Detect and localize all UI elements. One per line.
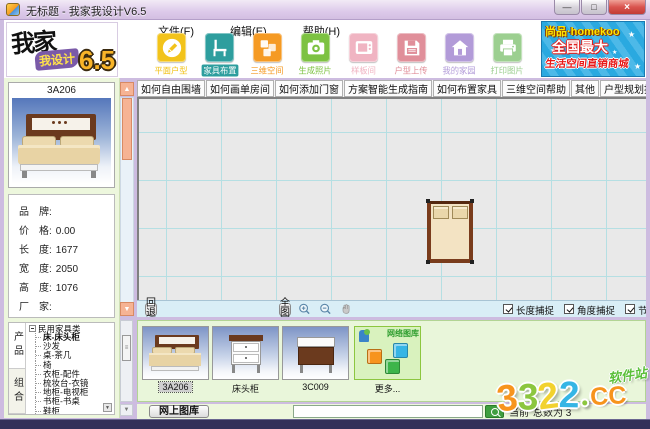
bed-dot	[52, 121, 55, 124]
checkbox-checked-icon[interactable]	[564, 304, 574, 314]
thumbnail-label: 更多...	[372, 382, 404, 395]
category-panel: 产品组合 民用家具类 床-床头柜沙发桌-茶几椅衣柜-配件梳妆台-衣镜地柜-电视柜…	[8, 322, 115, 415]
star-icon: ★	[634, 62, 641, 71]
snap-label: 角度捕捉	[577, 302, 615, 316]
help-strip: 如何自由围墙如何画单房间如何添加门窗方案智能生成指南如何布置家具三维空间帮助其他…	[137, 80, 646, 97]
pan-hand-icon[interactable]	[339, 302, 354, 316]
window-border-left	[0, 20, 4, 419]
bed-dot	[58, 121, 61, 124]
search-input[interactable]	[293, 405, 483, 418]
info-row-1: 价 格:0.00	[19, 222, 114, 241]
close-button[interactable]: ×	[608, 0, 646, 15]
snap-option-0[interactable]: 长度捕捉	[503, 302, 555, 317]
main-toolbar: 平面户型家具布置三维空间生成照片样板间户型上传我的家园打印图片	[152, 33, 527, 77]
more-gallery-icon[interactable]: 网络图库	[354, 326, 421, 380]
bed-pillow	[452, 206, 468, 219]
info-label: 长 度:	[19, 245, 52, 256]
product-info: 品 牌:价 格:0.00长 度:1677宽 度:2050高 度:1076厂 家:	[8, 194, 115, 318]
category-tree: 民用家具类 床-床头柜沙发桌-茶几椅衣柜-配件梳妆台-衣镜地柜-电视柜书柜-书桌…	[26, 323, 114, 414]
info-value: 2050	[56, 264, 78, 275]
snap-options: 长度捕捉角度捕捉节点捕捉	[494, 302, 650, 317]
info-row-5: 厂 家:	[19, 298, 114, 317]
left-panel: 3A206 品 牌:价 格:0.00长 度:1677宽 度:2050高 度:10…	[4, 78, 120, 418]
bed-pillow	[433, 206, 449, 219]
window-title: 无标题 - 我家我设计V6.5	[26, 3, 146, 19]
cube-icon	[385, 359, 400, 374]
online-gallery-button[interactable]: 网上图库	[149, 405, 209, 418]
pencil-icon	[157, 33, 186, 62]
tree-scroll-button[interactable]: ▼	[103, 403, 112, 412]
title-bar[interactable]: 无标题 - 我家我设计V6.5 —□×	[0, 0, 650, 20]
bed-mattress	[18, 145, 100, 165]
bottom-scroll-button[interactable]: ▼	[120, 404, 133, 416]
help-link-5[interactable]: 三维空间帮助	[502, 80, 570, 97]
camera-icon	[301, 33, 330, 62]
thumbnail-card-3A206[interactable]: 3A206	[142, 326, 209, 396]
scrollbar-thumb[interactable]	[122, 98, 132, 160]
thumbnail-label: 床头柜	[229, 382, 262, 395]
floppy-icon	[397, 33, 426, 62]
toolbar-item-0[interactable]: 平面户型	[152, 33, 191, 77]
toolbar-item-6[interactable]: 我的家园	[440, 33, 479, 77]
help-scroll-up-button[interactable]: ▲	[120, 82, 134, 96]
bed-base	[20, 164, 98, 171]
star-icon: ★	[628, 30, 635, 39]
info-row-2: 长 度:1677	[19, 241, 114, 260]
bed-object-topview[interactable]	[427, 201, 473, 263]
zoom-in-icon[interactable]	[297, 302, 312, 316]
watermark-letters: 3322CC	[496, 373, 627, 417]
toolbar-item-label: 平面户型	[155, 65, 188, 77]
product-thumbnail[interactable]	[212, 326, 279, 380]
selection-handle[interactable]	[426, 199, 430, 203]
info-row-0: 品 牌:	[19, 203, 114, 222]
info-label: 价 格:	[19, 226, 52, 237]
help-link-4[interactable]: 如何布置家具	[433, 80, 501, 97]
header: 我家 我设计 6.5 文件(F)编辑(E)帮助(H) 平面户型家具布置三维空间生…	[4, 20, 646, 78]
site-watermark: 软件站 3322CC	[496, 364, 650, 429]
help-link-6[interactable]: 其他	[571, 80, 599, 97]
banner-line2: 全国最大	[552, 37, 608, 57]
thumbnail-label: 3A206	[159, 382, 191, 392]
minimize-button[interactable]: —	[554, 0, 580, 15]
thumbnail-card-床头柜[interactable]: 床头柜	[212, 326, 279, 396]
tv-icon	[349, 33, 378, 62]
printer-icon	[493, 33, 522, 62]
bed-leg	[22, 171, 27, 178]
help-link-2[interactable]: 如何添加门窗	[275, 80, 343, 97]
toolbar-item-label: 我的家园	[443, 65, 476, 77]
logo-version: 6.5	[79, 45, 115, 76]
snap-option-1[interactable]: 角度捕捉	[564, 302, 616, 317]
toolbar-item-label: 家具布置	[201, 65, 238, 77]
info-label: 宽 度:	[19, 264, 52, 275]
more-overlay-label: 网络图库	[387, 328, 419, 339]
toolbar-item-5[interactable]: 户型上传	[392, 33, 431, 77]
toolbar-item-label: 样板间	[351, 65, 376, 77]
category-tabs: 产品组合	[9, 323, 26, 414]
toolbar-item-2[interactable]: 三维空间	[248, 33, 287, 77]
maximize-button[interactable]: □	[581, 0, 607, 15]
category-tab-0[interactable]: 产品	[9, 323, 25, 369]
info-row-3: 宽 度:2050	[19, 260, 114, 279]
selection-handle[interactable]	[426, 260, 430, 264]
app-icon	[6, 3, 20, 16]
chair-icon	[205, 33, 234, 62]
canvas-vertical-scrollbar[interactable]	[120, 97, 134, 316]
toolbar-item-label: 生成照片	[299, 65, 332, 77]
checkbox-checked-icon[interactable]	[503, 304, 513, 314]
gallery-figure-icon	[359, 330, 369, 342]
toolbar-item-1[interactable]: 家具布置	[200, 33, 239, 77]
help-link-3[interactable]: 方案智能生成指南	[344, 80, 432, 97]
product-thumbnail[interactable]	[282, 326, 349, 380]
toolbar-item-4[interactable]: 样板间	[344, 33, 383, 77]
selection-handle[interactable]	[470, 199, 474, 203]
toolbar-item-7[interactable]: 打印图片	[488, 33, 527, 77]
undo-button[interactable]: 回退	[145, 303, 157, 316]
canvas-toolbar: 回退 全图 长度捕捉角度捕捉节点捕捉	[137, 300, 646, 317]
help-link-1[interactable]: 如何画单房间	[206, 80, 274, 97]
product-code: 3A206	[9, 85, 114, 96]
banner-line3: 生活空间直销商城	[544, 55, 629, 70]
watermark-suffix: CC	[590, 383, 627, 410]
info-row-4: 高 度:1076	[19, 279, 114, 298]
info-value: 1076	[56, 283, 78, 294]
collapse-icon[interactable]	[29, 325, 36, 332]
design-canvas[interactable]	[137, 97, 646, 300]
toolbar-item-label: 三维空间	[251, 65, 284, 77]
window-border-right	[646, 20, 650, 419]
checkbox-checked-icon[interactable]	[625, 304, 635, 314]
watermark-letter: 2	[558, 376, 579, 413]
watermark-letter: 3	[495, 378, 520, 417]
fit-view-button[interactable]: 全图	[279, 303, 291, 316]
thumbnail-card-3C009[interactable]: 3C009	[282, 326, 349, 396]
application-window: 无标题 - 我家我设计V6.5 —□× 我家 我设计 6.5 文件(F)编辑(E…	[0, 0, 650, 429]
zoom-out-icon[interactable]	[318, 302, 333, 316]
help-link-0[interactable]: 如何自由围墙	[137, 80, 205, 97]
product-thumbnail[interactable]	[142, 326, 209, 380]
thumbnails-scrollbar[interactable]: ≡	[120, 320, 133, 402]
cubes-icon	[253, 33, 282, 62]
ad-banner[interactable]: ★ ★ ★ ★ 尚品·homekoo 全国最大 生活空间直销商城	[541, 21, 645, 77]
window-controls: —□×	[553, 0, 646, 15]
watermark-letter: 2	[536, 376, 561, 415]
help-link-7[interactable]: 户型规划指南	[600, 80, 650, 97]
thumbnail-card-更多...[interactable]: 网络图库更多...	[354, 326, 421, 396]
info-value: 1677	[56, 245, 78, 256]
toolbar-item-label: 户型上传	[395, 65, 428, 77]
toolbar-item-label: 打印图片	[491, 65, 524, 77]
category-tab-1[interactable]: 组合	[9, 369, 25, 415]
product-image	[12, 98, 111, 184]
scrollbar-grip[interactable]: ≡	[122, 335, 131, 361]
bed-dot	[64, 121, 67, 124]
product-preview: 3A206	[8, 82, 115, 188]
bed-headboard-panel	[32, 118, 90, 130]
info-label: 厂 家:	[19, 302, 52, 313]
bed-leg	[91, 171, 96, 178]
info-label: 品 牌:	[19, 207, 52, 218]
watermark-dot	[580, 398, 589, 407]
cube-icon	[393, 343, 408, 358]
selection-handle[interactable]	[470, 260, 474, 264]
info-value: 0.00	[56, 226, 75, 237]
watermark-letter: 3	[517, 378, 538, 415]
thumbnail-label: 3C009	[299, 382, 332, 392]
house-icon	[445, 33, 474, 62]
info-label: 高 度:	[19, 283, 52, 294]
cube-icon	[367, 349, 382, 364]
scrollbar-down-button[interactable]: ▼	[120, 302, 134, 316]
logo-text-2: 我设计	[34, 48, 80, 71]
toolbar-item-3[interactable]: 生成照片	[296, 33, 335, 77]
app-logo: 我家 我设计 6.5	[6, 22, 118, 77]
snap-label: 长度捕捉	[516, 302, 554, 316]
